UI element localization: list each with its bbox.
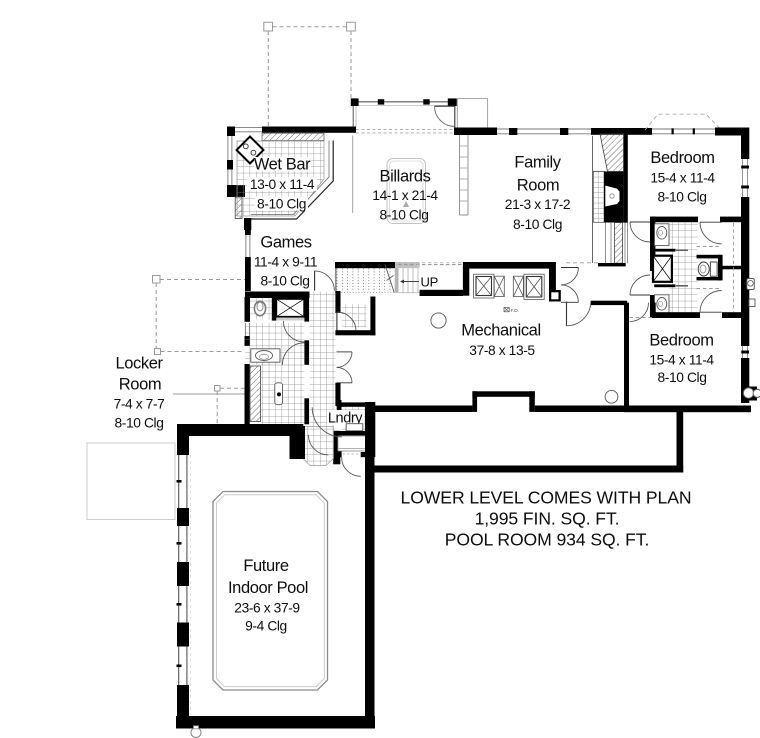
svg-text:21-3 x 17-2: 21-3 x 17-2: [505, 197, 570, 212]
svg-text:37-8 x 13-5: 37-8 x 13-5: [469, 343, 535, 358]
svg-text:7-4 x 7-7: 7-4 x 7-7: [114, 397, 165, 412]
svg-text:Room: Room: [119, 376, 161, 394]
svg-text:23-6 x 37-9: 23-6 x 37-9: [234, 601, 300, 616]
svg-text:Indoor Pool: Indoor Pool: [228, 579, 308, 597]
svg-text:Bedroom: Bedroom: [649, 332, 713, 350]
svg-text:11-4 x 9-11: 11-4 x 9-11: [254, 255, 317, 270]
svg-text:Future: Future: [243, 557, 289, 575]
svg-text:Locker: Locker: [115, 355, 163, 373]
svg-text:8-10 Clg: 8-10 Clg: [261, 274, 310, 289]
svg-text:LOWER LEVEL COMES WITH PLAN: LOWER LEVEL COMES WITH PLAN: [401, 488, 692, 508]
svg-text:8-10 Clg: 8-10 Clg: [257, 197, 306, 212]
svg-text:Room: Room: [517, 177, 559, 195]
svg-text:8-10 Clg: 8-10 Clg: [658, 370, 707, 385]
svg-text:UP: UP: [421, 275, 438, 290]
svg-text:Games: Games: [260, 234, 311, 252]
svg-text:Billards: Billards: [380, 168, 431, 186]
svg-text:14-1 x 21-4: 14-1 x 21-4: [372, 188, 438, 203]
svg-text:8-10 Clg: 8-10 Clg: [380, 208, 429, 223]
svg-text:Wet Bar: Wet Bar: [254, 156, 311, 174]
svg-text:9-4 Clg: 9-4 Clg: [245, 619, 287, 634]
svg-text:8-10 Clg: 8-10 Clg: [115, 416, 164, 431]
svg-text:Mechanical: Mechanical: [461, 322, 540, 340]
svg-text:F.D.: F.D.: [511, 308, 520, 314]
svg-text:1,995 FIN. SQ. FT.: 1,995 FIN. SQ. FT.: [475, 509, 620, 529]
svg-text:15-4 x 11-4: 15-4 x 11-4: [649, 353, 714, 368]
svg-text:15-4 x 11-4: 15-4 x 11-4: [650, 171, 715, 186]
svg-text:8-10 Clg: 8-10 Clg: [513, 217, 562, 232]
svg-text:Family: Family: [514, 154, 561, 172]
svg-text:13-0 x 11-4: 13-0 x 11-4: [250, 177, 315, 192]
svg-text:POOL ROOM 934 SQ. FT.: POOL ROOM 934 SQ. FT.: [445, 530, 650, 550]
svg-text:Bedroom: Bedroom: [650, 149, 714, 167]
svg-text:8-10 Clg: 8-10 Clg: [658, 190, 707, 205]
